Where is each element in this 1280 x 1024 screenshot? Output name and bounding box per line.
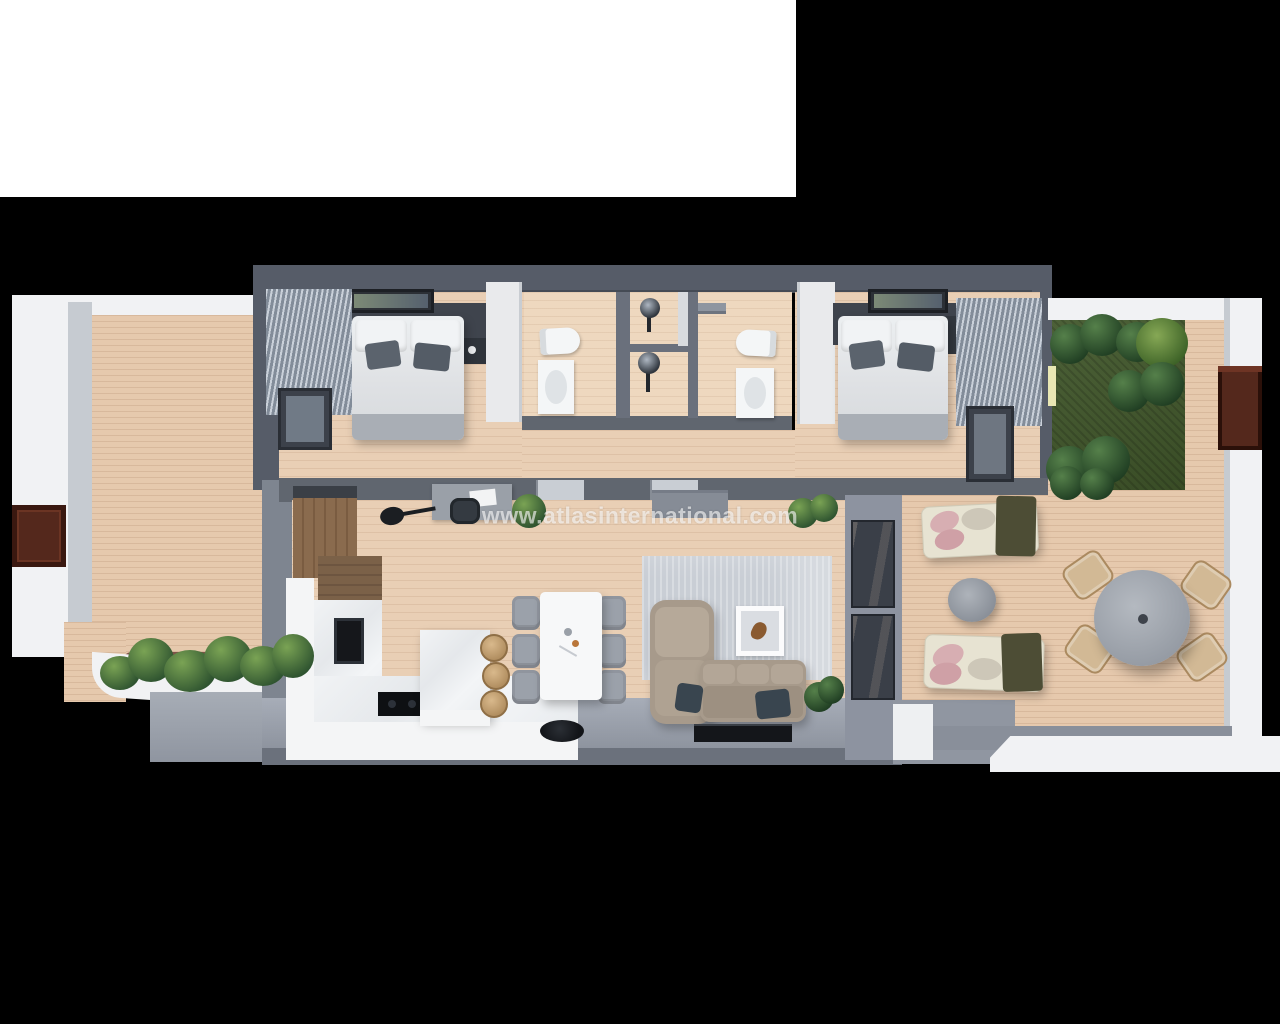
tv	[694, 724, 792, 742]
floor-plan-scene: www.atlasinternational.com	[0, 0, 1280, 1024]
navy-cushion	[674, 682, 704, 713]
table-center	[1138, 614, 1148, 624]
watermark-text: www.atlasinternational.com	[482, 503, 798, 530]
shower-fixture-2	[636, 352, 662, 392]
kitchen-sink	[334, 618, 364, 664]
terrace-plant	[1046, 466, 1126, 502]
cushion	[848, 340, 885, 370]
cushion	[413, 342, 452, 372]
glass-door-panel	[851, 614, 895, 700]
basin	[744, 377, 766, 409]
bar-stool	[480, 634, 508, 662]
burner	[408, 700, 416, 708]
cushion	[364, 340, 401, 370]
shower-head	[638, 352, 660, 374]
sofa-back-cushion	[703, 664, 735, 684]
hallway	[522, 430, 797, 480]
bathroom2-shower-arm	[698, 303, 726, 314]
wall-bath1-shower	[616, 292, 630, 418]
plant-by-sofa	[804, 676, 844, 720]
round-speaker	[540, 720, 584, 742]
planter-plants	[100, 628, 316, 704]
bedroom2-window-frame	[966, 406, 1014, 482]
bottom-parapet	[990, 736, 1280, 772]
foot-blanket	[838, 414, 948, 440]
guitar-neck	[400, 506, 436, 516]
shower-fixture-1	[638, 298, 662, 332]
burner	[388, 700, 396, 708]
window-pane	[286, 396, 324, 442]
olive-blanket	[1001, 633, 1043, 692]
shower-head	[640, 298, 660, 318]
table-deco	[564, 628, 572, 636]
art-print	[874, 294, 942, 308]
navy-cushion	[755, 688, 792, 719]
dining-chair	[598, 670, 626, 704]
bathroom2-washbasin	[736, 368, 774, 418]
entry-door-brown	[12, 505, 66, 567]
terrace-white-sill	[893, 704, 933, 760]
kitchen-island-front	[420, 710, 490, 726]
dining-chair	[512, 634, 540, 668]
kitchen-wood-return	[318, 556, 382, 606]
dining-chair	[598, 596, 626, 630]
dining-chair	[598, 634, 626, 668]
desk-chair	[450, 498, 480, 524]
lamp	[468, 346, 476, 354]
art-print	[354, 294, 428, 308]
sun-lounger-2	[923, 630, 1043, 694]
table-deco	[572, 640, 579, 647]
side-table	[948, 578, 996, 622]
sofa-back-cushion	[737, 664, 769, 684]
bedroom1-bed	[352, 316, 464, 440]
bar-stool	[482, 662, 510, 690]
basin	[545, 370, 567, 404]
window-pane	[974, 414, 1006, 474]
garden-plant-mid	[1108, 362, 1184, 416]
sun-lounger-1	[921, 497, 1038, 561]
bedroom1-window-frame	[278, 388, 332, 450]
pergola-door-brown	[1218, 366, 1262, 450]
wall-bath-divider	[688, 292, 698, 418]
bedroom1-wardrobe	[486, 282, 522, 422]
left-terrace-parapet-left	[12, 295, 68, 657]
dining-chair	[512, 670, 540, 704]
outdoor-dining-table	[1094, 570, 1190, 666]
bedroom2-wall-art	[868, 289, 948, 313]
left-terrace-parapet-inner-face	[68, 302, 92, 654]
bathroom1-toilet	[539, 327, 580, 355]
living-wall-art	[736, 606, 784, 656]
kitchen-counter-front-bottom	[286, 722, 578, 760]
bathroom1-washbasin	[538, 360, 574, 414]
glass-door-panel	[851, 520, 895, 608]
olive-blanket	[995, 496, 1036, 557]
page-white-band	[0, 0, 796, 197]
dining-table	[540, 592, 602, 700]
dining-chair	[512, 596, 540, 630]
bedroom2-bed	[838, 316, 948, 440]
bedroom2-wardrobe	[797, 282, 835, 424]
bedroom1-wall-art	[348, 289, 434, 313]
cushion	[897, 342, 936, 372]
sofa-back-cushion	[771, 664, 803, 684]
foot-blanket	[352, 414, 464, 440]
bar-stool	[480, 690, 508, 718]
bathroom2-toilet	[735, 329, 776, 357]
sofa-cushion	[655, 607, 709, 657]
wall-bathrooms-bottom	[522, 416, 792, 430]
